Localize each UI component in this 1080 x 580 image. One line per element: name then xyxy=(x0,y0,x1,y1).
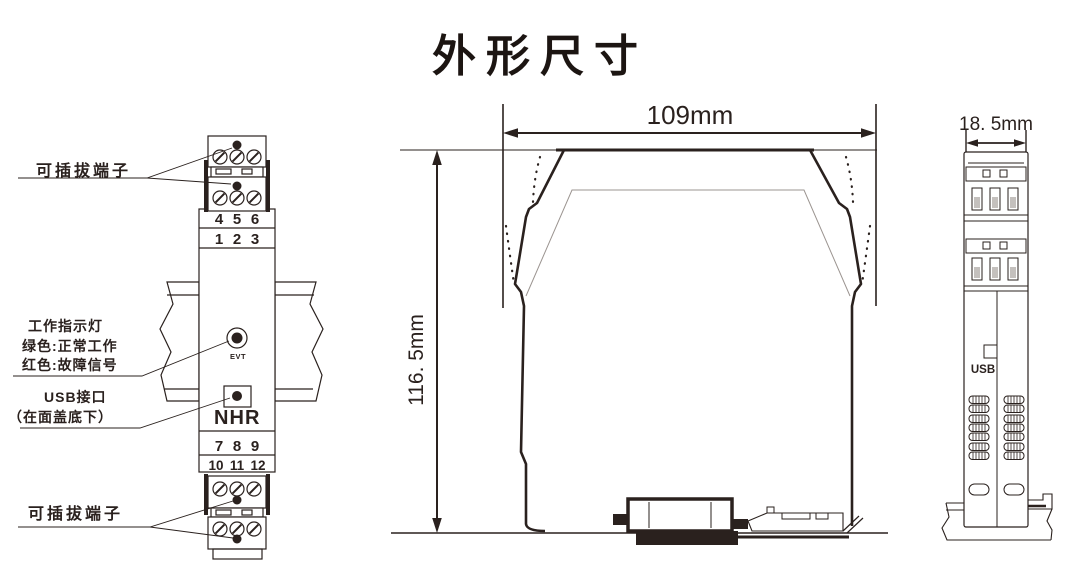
height-dim-label: 116. 5mm xyxy=(405,314,428,406)
terminal-7: 7 xyxy=(215,438,223,455)
front-view: 4 5 6 1 2 3 7 8 9 10 11 12 xyxy=(13,136,323,559)
lever-dotted-right-top xyxy=(846,157,853,202)
logo-letter-h: H xyxy=(230,407,244,429)
logo-letter-r: R xyxy=(245,407,260,429)
dimension-width: 109mm xyxy=(503,100,876,308)
terminal-4: 4 xyxy=(215,211,224,228)
bottom-terminal-blocks xyxy=(204,474,270,559)
rail-clip-detail xyxy=(613,499,863,545)
terminal-5: 5 xyxy=(233,211,241,228)
terminal-3: 3 xyxy=(251,231,259,248)
end-width-dim-label: 18. 5mm xyxy=(959,114,1033,135)
led-label: EVT xyxy=(230,352,246,361)
top-terminal-blocks xyxy=(204,136,270,212)
lever-dotted-left-top xyxy=(533,157,540,202)
terminal-8: 8 xyxy=(233,438,241,455)
terminal-10: 10 xyxy=(208,458,223,473)
width-dim-label: 109mm xyxy=(647,100,734,130)
latch-slider xyxy=(748,513,843,531)
terminal-12: 12 xyxy=(250,458,265,473)
cover-inner-line xyxy=(526,190,850,296)
terminal-9: 9 xyxy=(251,438,259,455)
logo-letter-n: N xyxy=(214,407,228,429)
end-view: 18. 5mm xyxy=(942,114,1052,540)
terminal-point-top-2 xyxy=(233,182,242,191)
dimension-height: 116. 5mm xyxy=(405,150,442,533)
terminal-point-top-1 xyxy=(233,141,242,150)
brand-logo: N H R xyxy=(214,407,260,429)
terminal-2: 2 xyxy=(233,231,241,248)
terminal-point-bottom-1 xyxy=(233,496,242,505)
outline-dimensions-page: 外形尺寸 可插拔端子 工作指示灯 绿色:正常工作 红色:故障信号 USB接口 （… xyxy=(0,0,1080,580)
side-view: 109mm 116. 5mm xyxy=(391,100,888,545)
lever-dotted-left-bottom xyxy=(506,226,514,284)
drawing: 4 5 6 1 2 3 7 8 9 10 11 12 xyxy=(0,0,1080,580)
usb-label-end: USB xyxy=(971,364,995,376)
terminal-6: 6 xyxy=(251,211,259,228)
terminal-1: 1 xyxy=(215,231,223,248)
terminal-11: 11 xyxy=(230,458,245,473)
housing-outline xyxy=(506,150,870,531)
lever-dotted-right-bottom xyxy=(862,226,870,284)
terminal-point-bottom-2 xyxy=(233,535,242,544)
